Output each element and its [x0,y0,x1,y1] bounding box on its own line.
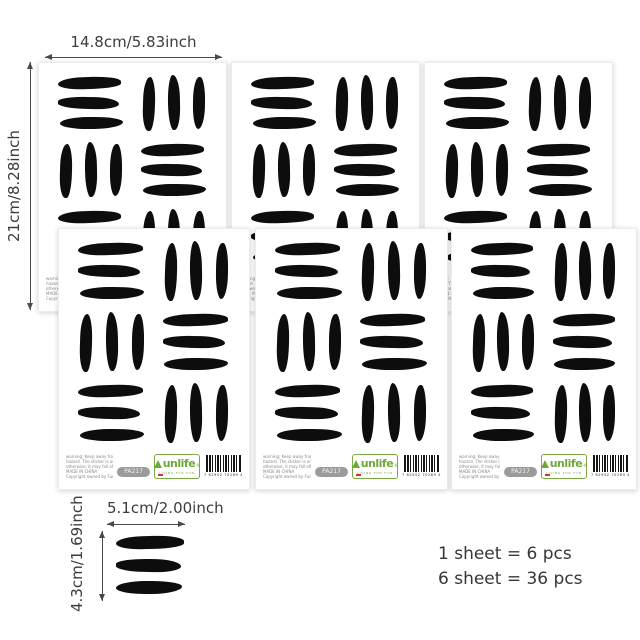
brush-stroke [141,163,202,176]
brush-stroke [164,358,228,371]
brush-stroke [603,385,616,441]
brush-stroke [58,76,122,90]
sheet-footer: warning: Keep away from children under a… [459,448,630,484]
barcode-bars [404,455,439,472]
brush-stroke [553,75,566,131]
brush-stroke [578,241,591,301]
sticker-sheet: warning: Keep away from children under a… [255,228,448,490]
brush-stroke [275,384,341,398]
brush-stroke [335,77,349,131]
sheet-height-label: 21cm/8.28inch [5,62,23,310]
piece-height-arrow [102,531,103,601]
brush-stroke [527,163,588,176]
brush-stroke [336,184,399,197]
stroke-group-horizontal [78,383,146,443]
sheet-footer: warning: Keep away from children under a… [66,448,243,484]
copyright-line: Copyright owned by Funlife [459,474,500,479]
brush-stroke [167,75,180,131]
product-code-badge: PA217 [315,467,348,477]
brush-stroke [141,143,205,157]
brush-stroke [131,314,144,370]
brush-stroke [528,77,542,131]
brush-stroke [162,313,227,327]
logo-row: unlife ® [352,457,398,470]
stroke-group-horizontal [141,142,207,198]
brush-stroke [329,314,342,370]
product-code-badge: PA217 [504,467,537,477]
brush-stroke [164,385,178,443]
funlife-logo: unlife ® LIVING FOR FUN [541,454,587,479]
product-code-badge: PA217 [117,467,150,477]
logo-triangle-icon [352,460,360,468]
brush-stroke [302,312,315,372]
stroke-group-vertical [334,75,400,131]
brush-stroke [78,242,143,256]
warning-text: warning: Keep away from children under a… [66,454,113,479]
sheet-width-arrow [45,57,222,58]
logo-triangle-icon [154,460,162,468]
brush-stroke [78,406,140,420]
brush-stroke [360,75,373,131]
brush-stroke [360,335,423,349]
brush-stroke [472,314,486,372]
brush-stroke [164,243,178,301]
logo-tagline: LIVING FOR FUN [159,471,195,475]
piece-count-info: 1 sheet = 6 pcs 6 sheet = 36 pcs [438,542,583,592]
stroke-group-vertical [360,383,428,443]
brush-stroke [414,385,427,441]
stroke-group-vertical [163,241,231,301]
warning-text: warning: Keep away from children under a… [263,454,311,479]
logo-text: unlife [361,457,393,470]
warning-line: hazard. The sticker is only allowed to a… [263,459,311,464]
brush-stroke [362,358,427,371]
stroke-group-horizontal [334,142,400,198]
brush-stroke [445,144,459,198]
brush-stroke [603,243,616,299]
brush-stroke [473,287,534,300]
stroke-group-horizontal [78,241,146,301]
brush-stroke [78,384,143,398]
stroke-group-vertical [553,241,618,301]
warning-text: warning: Keep away from children under a… [459,454,500,479]
sheet-height-arrow [30,62,31,310]
funlife-logo: unlife ® LIVING FOR FUN [154,454,200,479]
brush-stroke [303,144,316,196]
piece-width-arrow [107,524,185,525]
warning-line: hazard. The sticker is only allowed to a… [66,459,113,464]
stroke-group-horizontal [553,312,618,372]
logo-tagline: LIVING FOR FUN [546,471,582,475]
brush-stroke [105,312,118,372]
brush-stroke [59,144,73,198]
brush-stroke [554,243,568,301]
brush-stroke [190,241,203,301]
brush-stroke [473,429,534,442]
brush-stroke [444,76,508,90]
stroke-group-horizontal [527,142,593,198]
brush-stroke [444,96,505,109]
stroke-group-vertical [527,75,593,131]
sticker-sheet: warning: Keep away from children under a… [451,228,637,490]
stroke-group-horizontal [444,75,510,131]
barcode-digits: 7 62952 70269 4 [591,473,630,477]
brush-stroke [471,264,531,277]
barcode-digits: 7 62952 70269 4 [402,473,441,477]
brush-stroke [252,144,266,198]
copyright-line: Copyright owned by Funlife [263,474,311,479]
brush-stroke [554,385,568,443]
stroke-group-vertical [275,312,343,372]
brush-stroke [471,242,533,256]
copyright-line: Copyright owned by Funlife [66,474,113,479]
brush-stroke [116,558,181,572]
barcode-bars [593,455,628,472]
sheet-footer: warning: Keep away from children under a… [263,448,441,484]
brush-stroke [253,117,316,130]
stroke-group-vertical [471,312,536,372]
stroke-group-vertical [553,383,618,443]
product-image: 14.8cm/5.83inch 21cm/8.28inch 5.1cm/2.00… [0,0,640,640]
brush-stroke [497,312,510,372]
logo-row: unlife ® [541,457,587,470]
brush-stroke [78,264,140,278]
brush-stroke [275,406,338,420]
brush-stroke [471,406,531,419]
stroke-group-horizontal [58,75,124,131]
stroke-group-vertical [360,241,428,301]
brush-stroke [578,383,591,443]
stroke-group-vertical [78,312,146,372]
logo-red-mark [545,474,550,476]
stroke-group-horizontal [471,383,536,443]
warning-line: warning: Keep away from children under a… [66,454,113,459]
brush-stroke [579,77,592,129]
logo-triangle-icon [541,460,549,468]
brush-stroke [251,76,315,90]
stroke-group-vertical [163,383,231,443]
stroke-group-horizontal [275,241,343,301]
brush-stroke [529,184,592,197]
registered-trademark-icon: ® [394,463,398,468]
barcode-digits: 7 62952 70269 4 [204,473,243,477]
brush-stroke [386,77,399,129]
single-piece-demo [116,536,184,594]
brush-stroke [334,163,395,176]
barcode: 7 62952 70269 4 [591,455,630,477]
stroke-group-horizontal [471,241,536,301]
stroke-group-vertical [251,142,317,198]
logo-text: unlife [163,457,195,470]
brush-stroke [275,242,341,256]
brush-stroke [110,144,123,196]
barcode: 7 62952 70269 4 [204,455,243,477]
brush-stroke [387,383,400,443]
logo-row: unlife ® [154,457,200,470]
brush-stroke [387,241,400,301]
brush-stroke [360,313,426,327]
brush-stroke [527,143,591,157]
registered-trademark-icon: ® [196,463,200,468]
stroke-group-horizontal [163,312,231,372]
warning-line: warning: Keep away from children under a… [459,454,500,459]
warning-line: warning: Keep away from children under a… [263,454,311,459]
brush-stroke [251,210,315,224]
brush-stroke [361,243,375,301]
warning-line: otherwise, it may fall off easily. [66,464,113,469]
warning-line: otherwise, it may fall off easily. [459,464,500,469]
brush-stroke [552,313,614,327]
brush-stroke [60,117,123,130]
logo-red-mark [356,474,361,476]
funlife-logo: unlife ® LIVING FOR FUN [352,454,398,479]
brush-stroke [277,142,290,198]
registered-trademark-icon: ® [583,463,587,468]
logo-red-mark [158,474,163,476]
brush-stroke [361,385,375,443]
brush-stroke [552,335,612,348]
piece-width-label: 5.1cm/2.00inch [107,499,185,517]
warning-line: otherwise, it may fall off easily. [263,464,311,469]
brush-stroke [216,243,229,299]
piece-height-label: 4.3cm/1.69inch [68,522,86,612]
stroke-group-horizontal [360,312,428,372]
total-count-line: 6 sheet = 36 pcs [438,567,583,592]
brush-stroke [84,142,97,198]
stroke-group-horizontal [275,383,343,443]
sheet-width-label: 14.8cm/5.83inch [45,33,222,51]
stroke-pattern [275,241,428,443]
brush-stroke [277,287,342,300]
brush-stroke [142,77,156,131]
brush-stroke [521,314,534,370]
brush-stroke [414,243,427,299]
brush-stroke [496,144,509,196]
brush-stroke [276,314,290,372]
stroke-group-vertical [141,75,207,131]
brush-stroke [162,335,224,349]
stroke-pattern [78,241,230,443]
stroke-group-horizontal [251,75,317,131]
brush-stroke [471,384,533,398]
brush-stroke [193,77,206,129]
brush-stroke [275,264,338,278]
logo-tagline: LIVING FOR FUN [357,471,393,475]
brush-stroke [58,210,122,224]
brush-stroke [190,383,203,443]
stroke-group-vertical [444,142,510,198]
brush-stroke [58,96,119,109]
brush-stroke [334,143,398,157]
brush-stroke [216,385,229,441]
brush-stroke [446,117,509,130]
barcode: 7 62952 70269 4 [402,455,441,477]
sticker-sheet: warning: Keep away from children under a… [58,228,250,490]
brush-stroke [251,96,312,109]
brush-stroke [470,142,483,198]
sheet-count-line: 1 sheet = 6 pcs [438,542,583,567]
logo-text: unlife [550,457,582,470]
brush-stroke [116,535,184,550]
brush-stroke [116,581,182,595]
brush-stroke [143,184,206,197]
barcode-bars [206,455,241,472]
brush-stroke [554,358,615,371]
brush-stroke [80,429,144,442]
brush-stroke [80,287,144,300]
stroke-group-vertical [58,142,124,198]
brush-stroke [79,314,93,372]
stroke-pattern [471,241,617,443]
brush-stroke [277,429,342,442]
warning-line: hazard. The sticker is only allowed to a… [459,459,500,464]
brush-stroke [444,210,508,224]
